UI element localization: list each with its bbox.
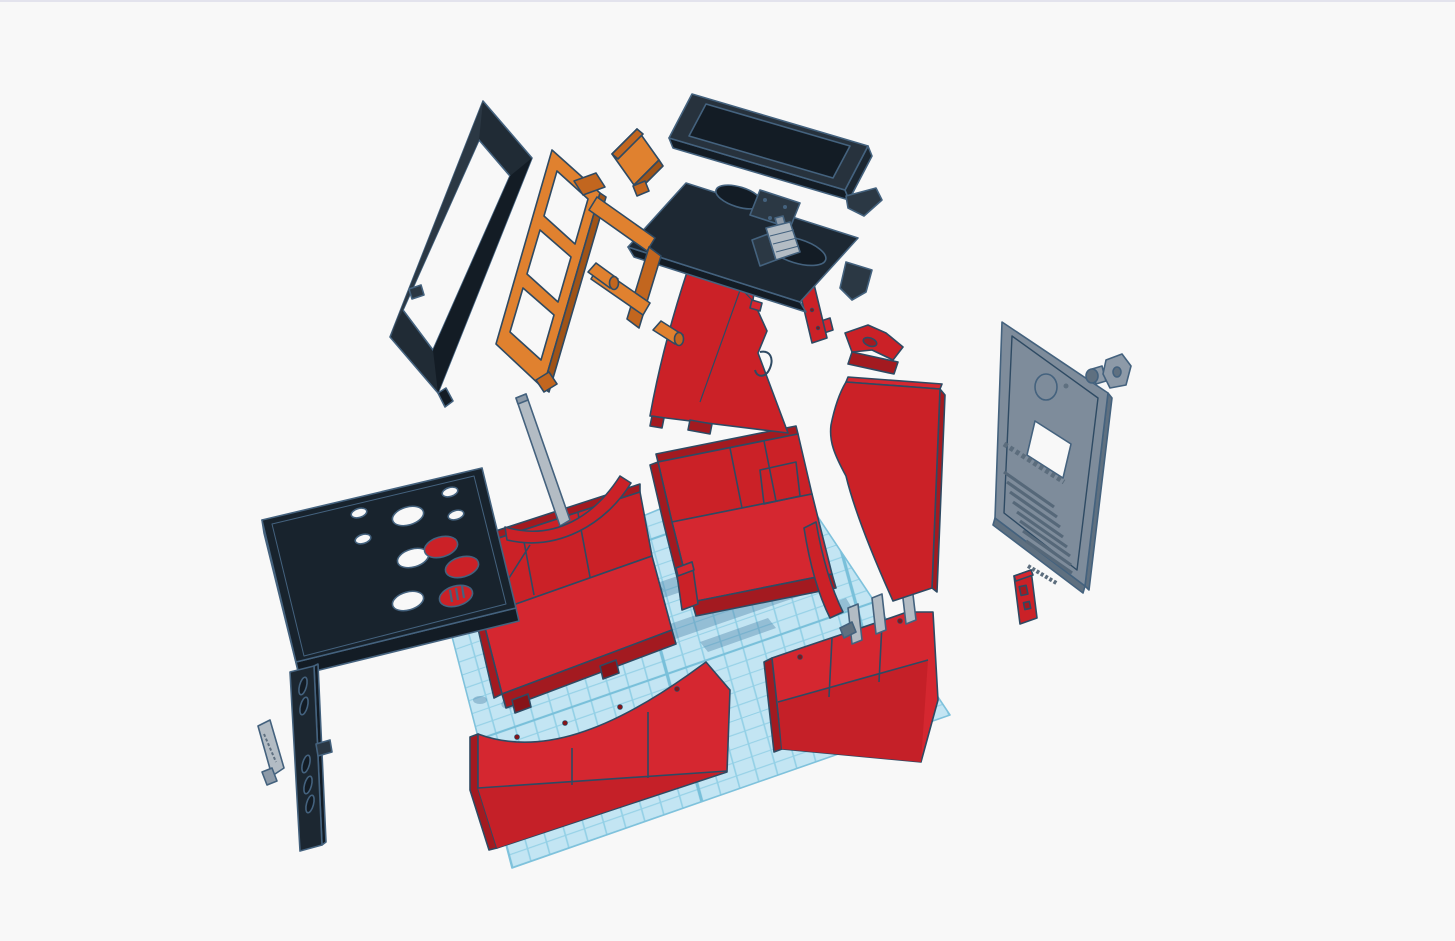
screw (816, 326, 820, 330)
model-canvas[interactable] (0, 0, 1455, 941)
knob-hole (1113, 367, 1121, 377)
foot-cap (610, 277, 619, 290)
cad-viewport[interactable] (0, 0, 1455, 941)
screw (798, 655, 803, 660)
lock-plug-cap (1086, 369, 1098, 383)
screw (783, 205, 787, 209)
top-border-line (0, 0, 1455, 2)
door-screw (1064, 384, 1069, 389)
foot-cap (675, 333, 684, 346)
coin-detail (1023, 601, 1030, 609)
screw (515, 735, 520, 740)
coin-detail (1019, 585, 1028, 595)
screw (563, 721, 568, 726)
screw (810, 308, 814, 312)
door-latch-tab (1035, 374, 1057, 400)
panel-foot (650, 416, 664, 428)
screw (763, 198, 767, 202)
screw (618, 705, 623, 710)
panel-tab (750, 300, 762, 311)
screw (898, 619, 903, 624)
screw (675, 687, 680, 692)
screw (768, 216, 772, 220)
shadow-dot (473, 696, 487, 704)
